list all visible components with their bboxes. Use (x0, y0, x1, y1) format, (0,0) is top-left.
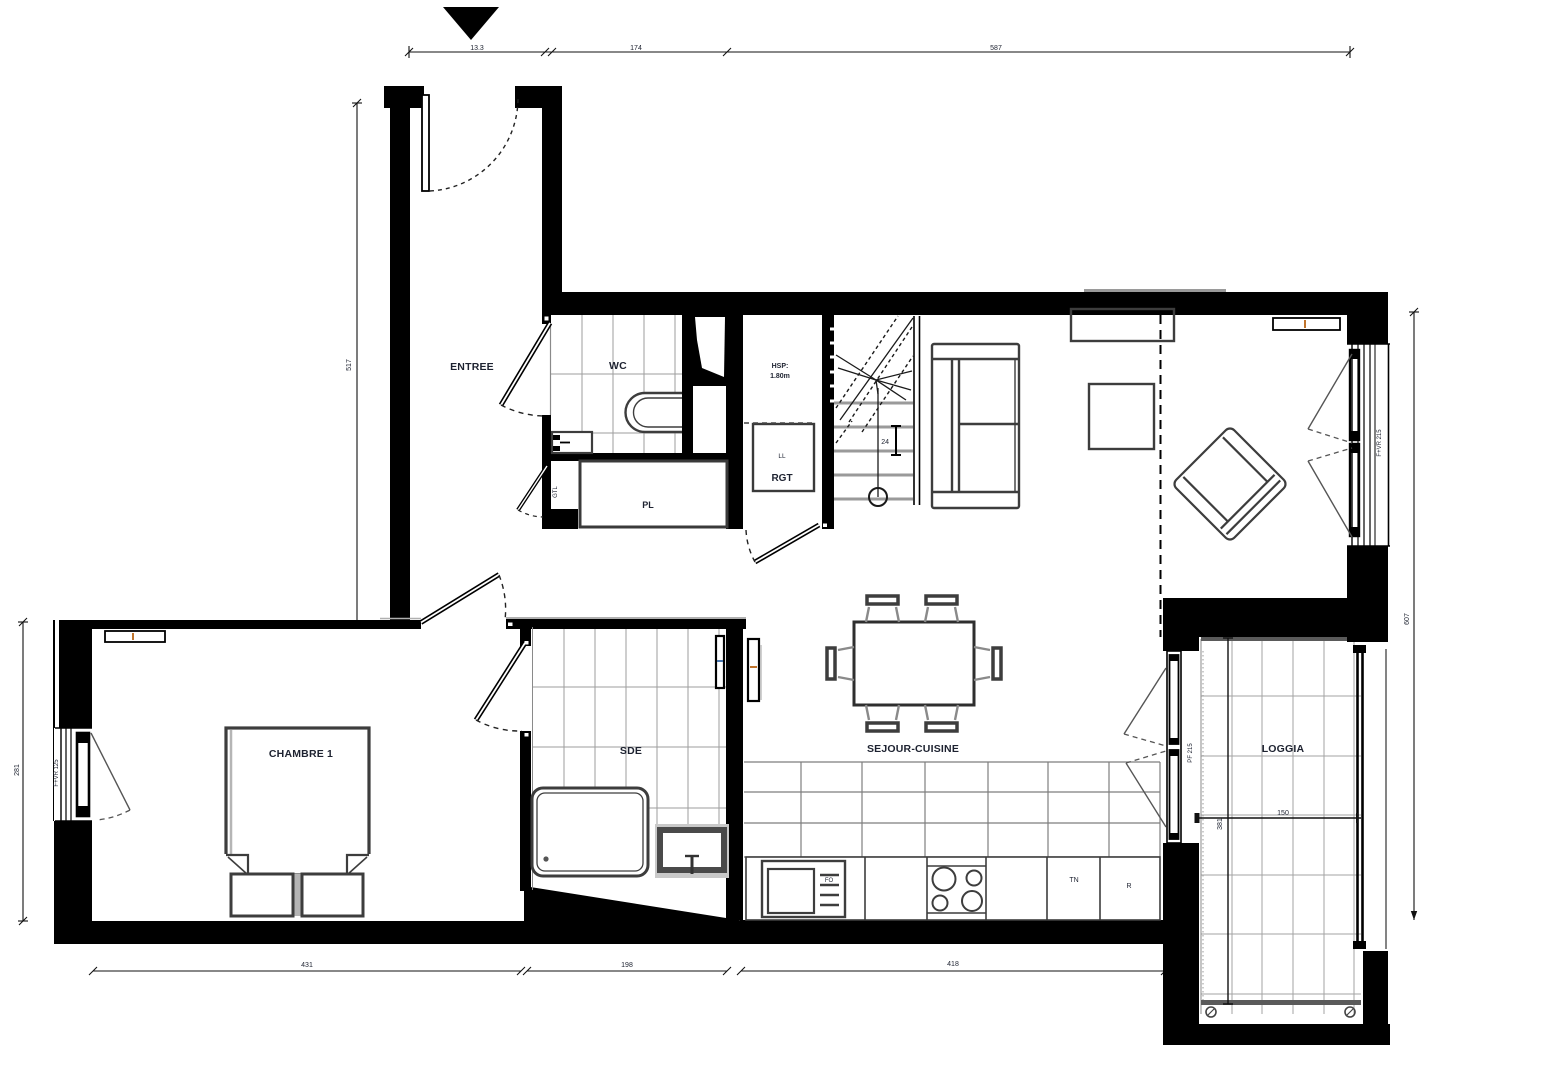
svg-text:381: 381 (1217, 818, 1224, 830)
svg-text:281: 281 (14, 764, 21, 776)
svg-text:607: 607 (1404, 613, 1411, 625)
svg-text:174: 174 (630, 45, 642, 52)
svg-text:R: R (1126, 883, 1131, 890)
svg-text:587: 587 (990, 45, 1002, 52)
svg-text:SEJOUR-CUISINE: SEJOUR-CUISINE (867, 743, 959, 755)
svg-text:WC: WC (609, 360, 627, 372)
svg-text:F+VR 215: F+VR 215 (1377, 429, 1383, 457)
svg-text:LOGGIA: LOGGIA (1262, 743, 1305, 755)
svg-text:SDE: SDE (620, 745, 642, 757)
svg-text:LL: LL (778, 453, 786, 460)
svg-text:RGT: RGT (771, 473, 792, 484)
svg-text:GTL: GTL (553, 486, 559, 498)
svg-text:F+VR 125: F+VR 125 (54, 759, 60, 787)
svg-text:13.3: 13.3 (470, 45, 484, 52)
svg-text:517: 517 (346, 359, 353, 371)
svg-text:PF 215: PF 215 (1188, 743, 1194, 763)
svg-text:431: 431 (301, 962, 313, 969)
svg-text:TN: TN (1069, 877, 1078, 884)
svg-text:24: 24 (881, 439, 889, 446)
svg-text:FO: FO (825, 878, 834, 884)
svg-text:1.80m: 1.80m (770, 373, 790, 380)
svg-text:ENTREE: ENTREE (450, 361, 494, 373)
svg-text:418: 418 (947, 961, 959, 968)
svg-text:CHAMBRE 1: CHAMBRE 1 (269, 748, 333, 760)
svg-text:HSP:: HSP: (772, 363, 789, 370)
svg-text:198: 198 (621, 962, 633, 969)
svg-text:PL: PL (642, 500, 654, 510)
svg-text:150: 150 (1277, 810, 1289, 817)
